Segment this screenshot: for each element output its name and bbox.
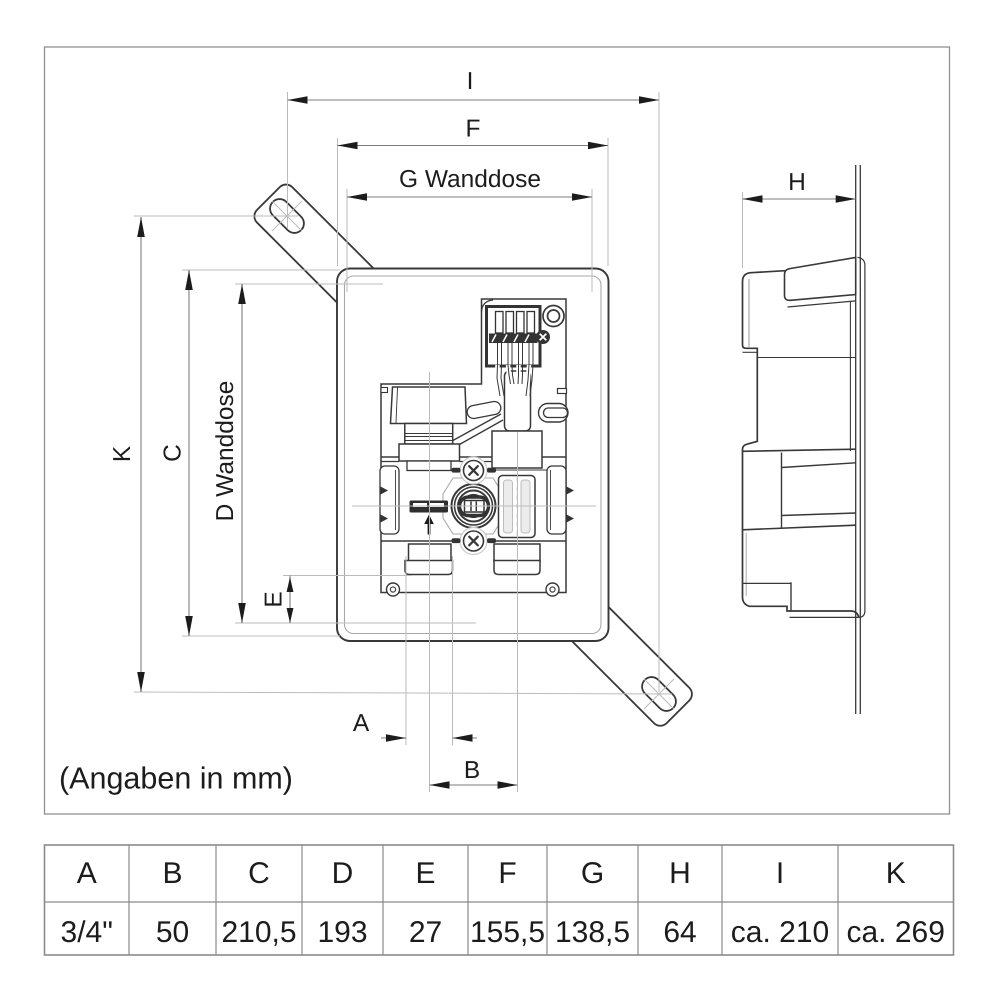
svg-text:64: 64 xyxy=(663,916,696,949)
svg-text:G: G xyxy=(581,857,604,890)
svg-text:193: 193 xyxy=(317,916,367,949)
svg-text:ca. 210: ca. 210 xyxy=(731,916,829,949)
svg-text:210,5: 210,5 xyxy=(221,916,296,949)
svg-text:A: A xyxy=(353,710,370,737)
svg-text:K: K xyxy=(109,445,136,462)
svg-text:C: C xyxy=(160,444,187,462)
svg-text:K: K xyxy=(886,857,906,890)
svg-text:H: H xyxy=(669,857,691,890)
svg-text:(Angaben in mm): (Angaben in mm) xyxy=(59,762,293,796)
svg-text:138,5: 138,5 xyxy=(555,916,630,949)
svg-text:155,5: 155,5 xyxy=(470,916,545,949)
svg-text:50: 50 xyxy=(156,916,189,949)
svg-text:3/4": 3/4" xyxy=(61,916,113,949)
svg-text:B: B xyxy=(464,757,480,784)
svg-text:G Wanddose: G Wanddose xyxy=(399,166,541,193)
svg-text:D Wanddose: D Wanddose xyxy=(212,381,239,522)
svg-text:D: D xyxy=(332,857,354,890)
svg-text:B: B xyxy=(162,857,182,890)
svg-text:E: E xyxy=(261,591,288,607)
svg-text:27: 27 xyxy=(409,916,442,949)
svg-text:A: A xyxy=(77,857,97,890)
svg-text:F: F xyxy=(466,116,481,143)
svg-text:I: I xyxy=(467,68,474,95)
svg-text:H: H xyxy=(788,169,806,196)
svg-text:E: E xyxy=(415,857,435,890)
svg-text:F: F xyxy=(498,857,516,890)
svg-text:C: C xyxy=(248,857,270,890)
svg-text:I: I xyxy=(776,857,784,890)
svg-text:ca. 269: ca. 269 xyxy=(846,916,944,949)
